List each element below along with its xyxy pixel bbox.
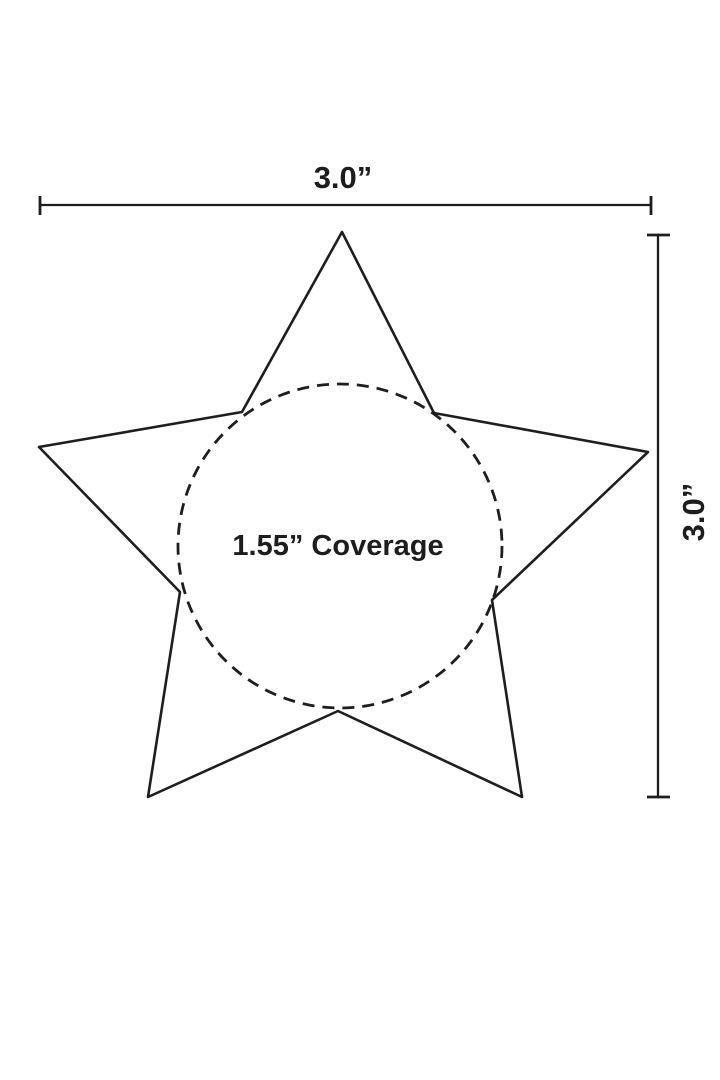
diagram-canvas: 3.0” 3.0” 1.55” Coverage [0, 0, 720, 1080]
width-dimension-label: 3.0” [243, 162, 443, 193]
height-dimension-label: 3.0” [678, 462, 712, 562]
height-dimension-line [647, 235, 670, 797]
star-outline [39, 232, 648, 797]
coverage-label: 1.55” Coverage [188, 532, 488, 561]
width-dimension-line [40, 196, 651, 215]
